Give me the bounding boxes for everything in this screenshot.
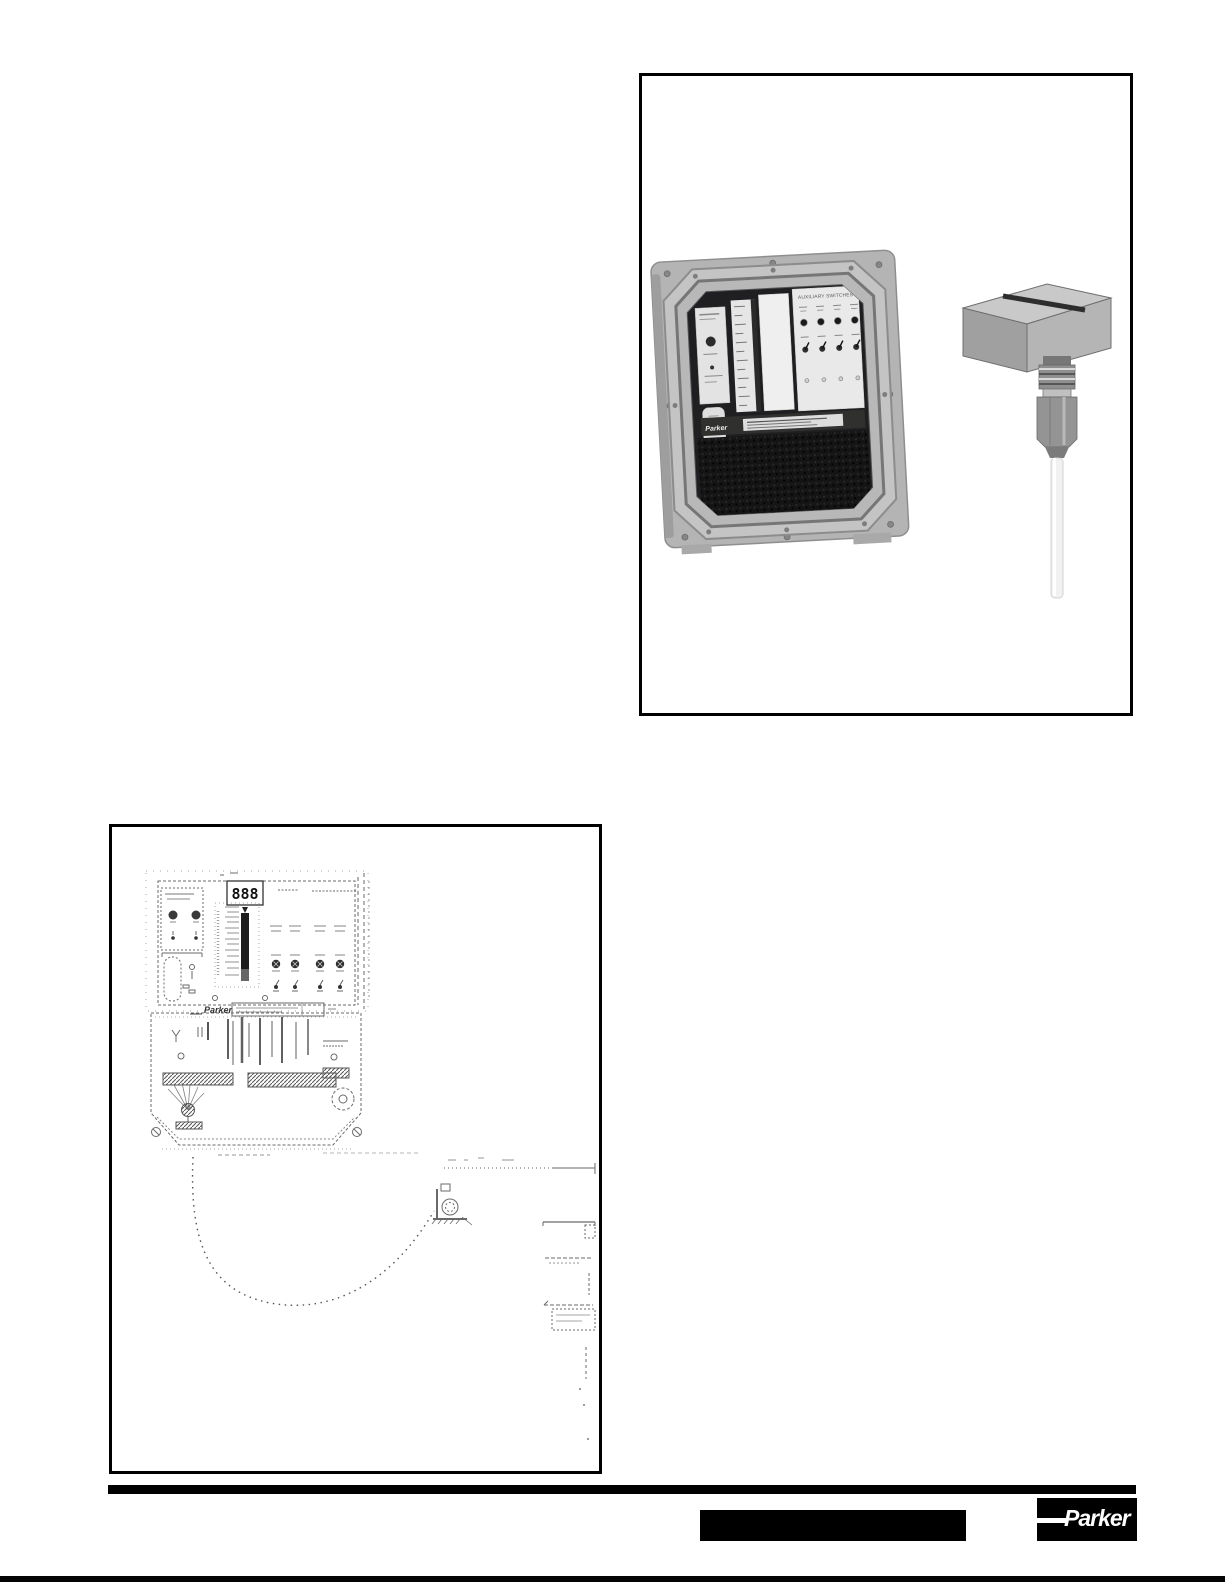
- sensor-photo: [937, 274, 1122, 704]
- sensor-fitting: [1037, 356, 1077, 458]
- led-indicator: [851, 316, 858, 323]
- cable-connector: [432, 1184, 472, 1225]
- foam-insert: [698, 429, 872, 516]
- led-indicator: [817, 318, 824, 325]
- footer-divider-bar: [108, 1485, 1136, 1494]
- auxiliary-switch-panel: AUXILIARY SWITCHES: [792, 286, 864, 411]
- parker-logo-dash: [1037, 1518, 1067, 1523]
- footer-label-box: [700, 1510, 966, 1541]
- probe-rod: [1051, 458, 1063, 598]
- sensor-drawing: [937, 274, 1122, 704]
- parker-logo: Parker: [1037, 1498, 1137, 1541]
- sensor-head-block: [963, 284, 1111, 372]
- control-unit-photo: AUXILIARY SWITCHES: [648, 246, 911, 559]
- installation-drawing-figure: 888: [109, 824, 602, 1474]
- control-unit-drawing: AUXILIARY SWITCHES: [648, 246, 911, 559]
- page-bottom-rule: [0, 1576, 1225, 1582]
- drawing-level-control: [161, 888, 203, 1001]
- led-indicator: [834, 317, 841, 324]
- drawing-switch-columns: [213, 890, 359, 1001]
- led-indicator: [800, 319, 807, 326]
- sensor-cable-curve: [193, 1157, 434, 1305]
- cable-gland: [182, 1104, 195, 1117]
- installation-line-drawing: 888: [112, 827, 599, 1471]
- product-photo-figure: AUXILIARY SWITCHES: [639, 73, 1133, 716]
- terminal-block: [323, 1068, 349, 1078]
- blank-strip: [758, 293, 794, 410]
- display-value: 888: [231, 885, 258, 903]
- hex-nut: [1037, 397, 1077, 447]
- brand-label: Parker: [705, 425, 728, 433]
- document-page: AUXILIARY SWITCHES: [0, 0, 1225, 1585]
- drawing-brand-label: Parker: [204, 1005, 233, 1015]
- terminal-block: [163, 1073, 233, 1085]
- parker-logo-text: Parker: [1064, 1507, 1130, 1530]
- drawing-lower-enclosure: [151, 1013, 420, 1155]
- drawing-probe-stack: [543, 1222, 595, 1440]
- dimension-line: [444, 1158, 595, 1174]
- drawing-bargraph: [215, 903, 259, 987]
